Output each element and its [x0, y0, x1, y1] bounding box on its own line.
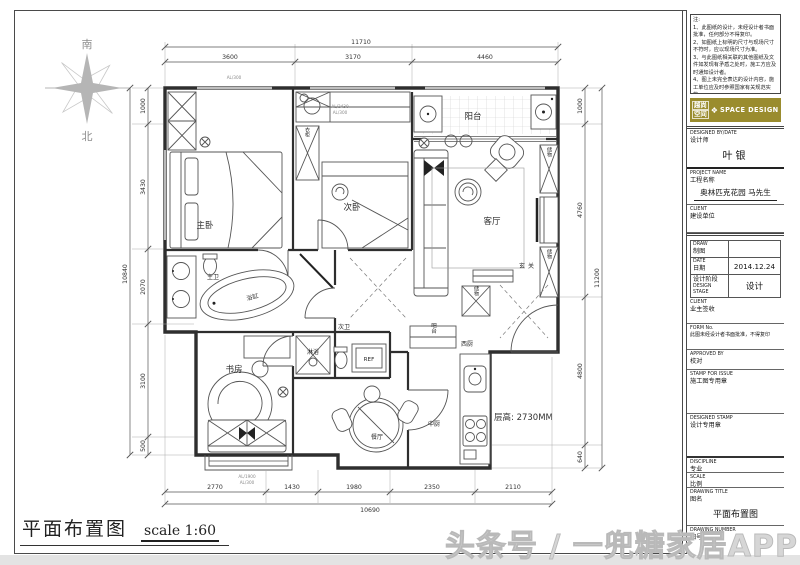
- logo-chinese: 越尚 空间: [692, 101, 709, 119]
- annotation-study-a: AL/1900: [238, 474, 256, 479]
- foyer-dashed: [500, 285, 548, 338]
- scale-label-cn: 比例: [690, 481, 781, 488]
- room-label-second-bath: 次卫: [338, 323, 350, 331]
- discipline-label-cn: 专业: [690, 466, 781, 473]
- divider: [687, 233, 784, 236]
- logo-cn-line1: 越尚: [692, 101, 709, 110]
- field-designer: DESIGNED BY/DATE 设计师 叶银: [687, 129, 784, 169]
- room-label-study: 书房: [225, 364, 242, 375]
- annotation-study-b: AL/300: [240, 480, 255, 485]
- title-block: 注: 1、此图纸的设计，未经设计者书面批准，任何部分不得复印。 2、如图纸上标明…: [686, 10, 784, 554]
- project-label-cn: 工程名称: [690, 177, 781, 185]
- hall-dashed: [350, 258, 406, 318]
- field-approved: APPROVED BY 校对: [687, 350, 784, 370]
- watermark: 头条号 / 一兜糖家居APP: [445, 521, 798, 565]
- study-sofa: [208, 420, 286, 452]
- field-stamp-design: DESIGNED STAMP 设计专用章: [687, 414, 784, 458]
- stamp-issue-label-cn: 施工图专用章: [690, 378, 781, 386]
- bar-label: 吧台: [430, 322, 437, 335]
- client-label-cn: 建设单位: [690, 213, 781, 221]
- logo-cn-line2: 空间: [692, 110, 709, 119]
- side-table-lamp: [419, 138, 429, 148]
- bed-second: [322, 162, 408, 248]
- tv: [537, 198, 540, 242]
- dim-top-seg3: 4460: [477, 54, 493, 61]
- storage-label-1: 储物: [546, 146, 552, 158]
- draw-value: [729, 241, 781, 258]
- study-desk: [244, 336, 290, 377]
- room-label-dining: 餐厅: [371, 433, 383, 441]
- storage-cabinet-top: 储物: [540, 145, 558, 193]
- wardrobe-label: 衣柜: [304, 126, 310, 138]
- door-master-bath: [305, 288, 335, 318]
- bath-partition: [300, 254, 333, 288]
- table-row-draw: DRAW 制图: [691, 241, 781, 258]
- note-4: 4、图上未完全表达的设计内容，施工单位应及时参照国家有关规范实施。: [693, 77, 778, 94]
- storage-label-3: 储物: [473, 285, 479, 297]
- field-discipline: DISCIPLINE 专业: [687, 458, 784, 473]
- form-label-cn: 此图未经设计者书面批准，不得复印: [690, 332, 781, 339]
- armchair: [485, 132, 527, 181]
- stage-label-en: DESIGN STAGE: [693, 284, 726, 296]
- note-3: 3、与此图纸相关联的其他图纸及文件如发现有矛盾之处时，施工方应及时通知设计者。: [693, 55, 778, 78]
- dim-bottom-seg5: 2110: [505, 484, 521, 491]
- balcony-cabinet: [414, 96, 442, 132]
- study-bay-window: [205, 455, 292, 470]
- dim-top-seg1: 3600: [222, 54, 238, 61]
- dim-bottom-seg2: 1430: [284, 484, 300, 491]
- field-client: CLIENT 建设单位: [687, 205, 784, 233]
- room-label-foyer: 玄关: [519, 262, 537, 270]
- note-2: 2、如图纸上标明的尺寸与现场尺寸不符时，应以现场尺寸为准。: [693, 40, 778, 55]
- room-label-shower: 淋浴: [307, 348, 319, 356]
- logo-diamond-icon: ❖: [711, 106, 718, 115]
- note-1: 1、此图纸的设计，未经设计者书面批准，任何部分不得复印。: [693, 25, 778, 40]
- logo-latin: SPACE DESIGN: [720, 106, 779, 114]
- room-label-west-kitchen: 西厨: [461, 341, 473, 348]
- dim-left-overall: 10840: [122, 264, 129, 284]
- field-client-sign: CLIENT 业主签收: [687, 298, 784, 324]
- compass-south-label: 南: [82, 38, 93, 51]
- bar-counter: 吧台: [410, 322, 456, 348]
- notes-heading: 注:: [693, 17, 778, 25]
- wardrobe-second: 衣柜: [296, 126, 319, 180]
- coffee-table: [455, 179, 481, 205]
- drawing-title-value: 平面布置图: [690, 507, 781, 520]
- dim-right-seg4: 640: [577, 451, 584, 463]
- dim-left-seg2: 3430: [140, 179, 147, 195]
- drawing-title-label-cn: 图名: [690, 496, 781, 504]
- drawing-sheet: 南 北: [0, 0, 800, 565]
- floor-plan-svg: 南 北: [0, 0, 686, 554]
- ceiling-height-note: 层高: 2730MM: [494, 412, 553, 423]
- stage-label-cn: 设计阶段: [693, 276, 726, 284]
- logo: 越尚 空间 ❖ SPACE DESIGN: [690, 98, 781, 122]
- dim-right-seg1: 1000: [577, 98, 584, 114]
- annotation-top: AL/300: [227, 75, 242, 80]
- dim-bottom-seg4: 2350: [424, 484, 440, 491]
- compass-north-label: 北: [82, 130, 93, 143]
- designer-value: 叶银: [690, 147, 781, 162]
- draw-label-cn: 制图: [693, 248, 726, 256]
- study-lamp: [278, 387, 288, 397]
- dim-top-overall: 11710: [351, 39, 371, 46]
- dim-left-seg5: 500: [140, 440, 147, 452]
- field-project: PROJECT NAME 工程名称 奥林匹克花园 马先生: [687, 169, 784, 205]
- fridge: REF: [352, 344, 386, 372]
- bed-master: [170, 152, 282, 248]
- designer-label-cn: 设计师: [690, 137, 781, 145]
- dim-left-seg3: 2070: [140, 279, 147, 295]
- tv-cabinet: [540, 197, 558, 243]
- room-label-kitchen: 中厨: [428, 420, 440, 428]
- field-scale: SCALE 比例: [687, 473, 784, 488]
- date-label-cn: 日期: [693, 265, 726, 273]
- dim-right-overall: 11200: [594, 268, 601, 288]
- kitchen-counter: [460, 354, 490, 464]
- dining-table: [330, 386, 420, 452]
- compass: 南 北: [38, 38, 136, 143]
- storage-box-foyer: 储物: [462, 285, 490, 316]
- room-label-master-bedroom: 主卧: [196, 220, 214, 231]
- annotation-balcony-a: AL/2430: [331, 104, 349, 109]
- date-value: 2014.12.24: [729, 258, 781, 275]
- drawing-caption-scale: scale 1:60: [141, 523, 219, 542]
- annotation-balcony-b: AL/300: [333, 110, 348, 115]
- dim-top-seg2: 3170: [345, 54, 361, 61]
- wardrobe-master: [168, 92, 196, 150]
- stage-value: 设计: [729, 275, 781, 298]
- stamp-design-label-cn: 设计专用章: [690, 422, 781, 430]
- dim-right-seg3: 4800: [577, 363, 584, 379]
- table-row-stage: 设计阶段 DESIGN STAGE 设计: [691, 275, 781, 298]
- nightstand-lamp-master: [200, 137, 210, 147]
- storage-cabinet-bottom: 储物: [540, 247, 558, 297]
- dim-bottom-seg1: 2770: [207, 484, 223, 491]
- notes-box: 注: 1、此图纸的设计，未经设计者书面批准，任何部分不得复印。 2、如图纸上标明…: [690, 14, 781, 94]
- toilet-master: [203, 254, 217, 275]
- field-stamp-issue: STAMP FOR ISSUE 施工图专用章: [687, 370, 784, 414]
- entry-bench: [473, 270, 513, 282]
- storage-label-2: 储物: [546, 248, 552, 260]
- project-value: 奥林匹克花园 马先生: [694, 187, 777, 201]
- revision-table: DRAW 制图 DATE 日期 2014.12.24 设计阶段 DESIGN S…: [690, 240, 781, 298]
- dim-top: 11710 3600 3170 4460: [162, 39, 561, 86]
- dim-right-seg2: 4760: [577, 202, 584, 218]
- washing-machine: [531, 95, 556, 129]
- client-sign-label-cn: 业主签收: [690, 306, 781, 314]
- room-label-second-bedroom: 次卧: [343, 202, 361, 213]
- entry-door: [511, 305, 558, 352]
- dim-left-seg1: 1000: [140, 98, 147, 114]
- approved-label-cn: 校对: [690, 358, 781, 366]
- table-row-date: DATE 日期 2014.12.24: [691, 258, 781, 275]
- dim-left-seg4: 3100: [140, 373, 147, 389]
- dim-bottom-overall: 10690: [360, 507, 380, 514]
- toilet-second: [334, 347, 347, 369]
- field-form: FORM No. 此图未经设计者书面批准，不得复印: [687, 324, 784, 350]
- room-label-balcony: 阳台: [464, 111, 481, 122]
- room-label-master-bath: 主卫: [207, 273, 219, 281]
- drawing-caption: 平面布置图 scale 1:60: [20, 514, 229, 546]
- dim-bottom-seg3: 1980: [346, 484, 362, 491]
- room-label-living: 客厅: [483, 216, 501, 227]
- desk-second-bedroom: [296, 92, 410, 122]
- fridge-label: REF: [364, 357, 375, 363]
- drawing-caption-title: 平面布置图: [22, 514, 127, 541]
- vanity: [167, 256, 196, 318]
